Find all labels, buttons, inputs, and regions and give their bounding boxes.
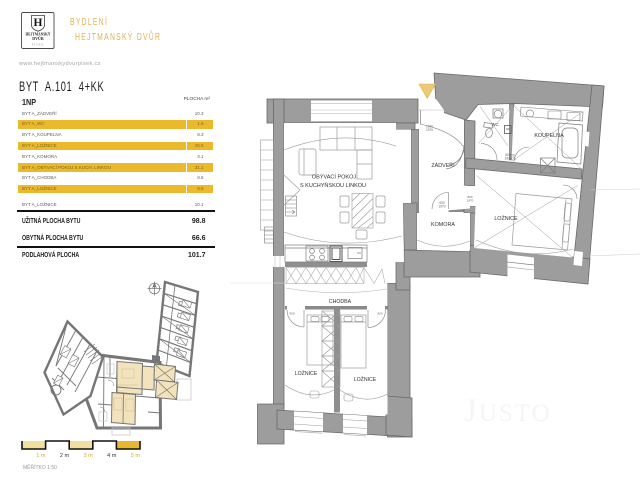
svg-text:800: 800 <box>377 312 382 316</box>
svg-text:KOUPELNA: KOUPELNA <box>534 133 564 139</box>
svg-text:800: 800 <box>289 312 294 316</box>
svg-text:S KUCHYŇSKOU LINKOU: S KUCHYŇSKOU LINKOU <box>300 182 366 189</box>
svg-text:1970: 1970 <box>467 198 474 202</box>
svg-text:2 m: 2 m <box>60 453 70 459</box>
svg-text:1970: 1970 <box>438 205 445 209</box>
svg-text:1970: 1970 <box>426 128 433 132</box>
svg-text:LOŽNICE: LOŽNICE <box>295 369 318 377</box>
svg-text:CHODBA: CHODBA <box>329 299 352 305</box>
svg-text:KOMORA: KOMORA <box>431 222 455 228</box>
svg-text:1970: 1970 <box>508 157 515 161</box>
svg-text:MĚŘÍTKO 1:50: MĚŘÍTKO 1:50 <box>23 463 57 471</box>
svg-text:OBÝVACÍ POKOJ: OBÝVACÍ POKOJ <box>312 174 356 181</box>
svg-text:1 m: 1 m <box>36 453 46 459</box>
svg-text:4 m: 4 m <box>107 453 117 459</box>
svg-text:LOŽNICE: LOŽNICE <box>354 375 377 383</box>
svg-text:5 m: 5 m <box>131 453 141 459</box>
svg-text:3 m: 3 m <box>83 453 93 459</box>
